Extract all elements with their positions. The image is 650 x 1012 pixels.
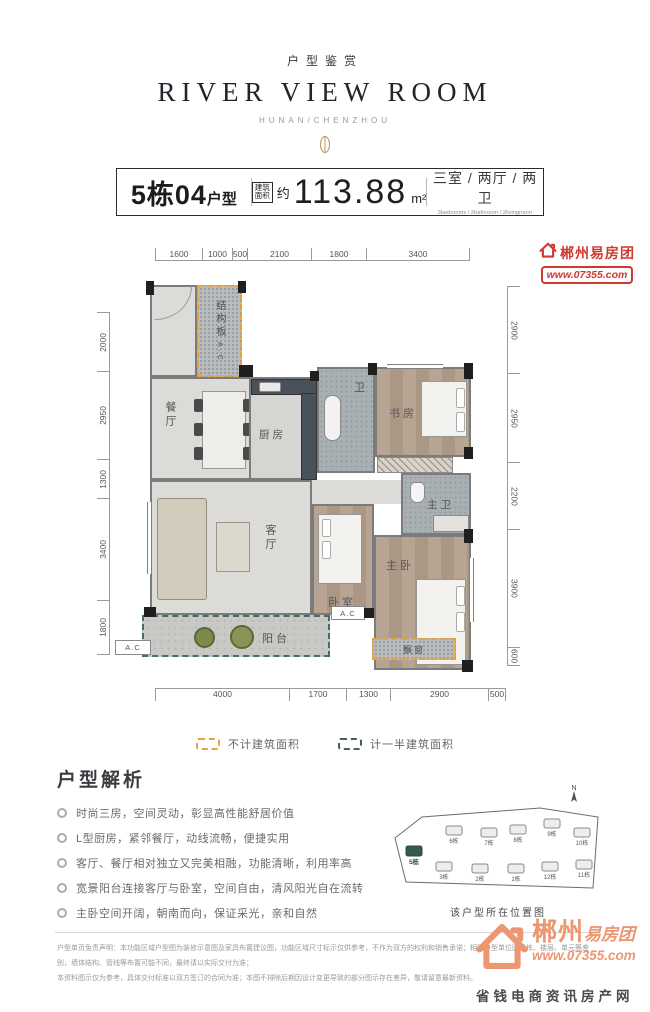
legend-swatch-teal	[338, 738, 362, 750]
svg-text:1栋: 1栋	[511, 875, 520, 883]
legend-label: 计一半建筑面积	[370, 736, 454, 752]
area-unit: m²	[411, 191, 426, 212]
kitchen-counter-side	[301, 393, 317, 480]
legend-item-half: 计一半建筑面积	[338, 736, 454, 752]
wall-pier	[144, 607, 156, 617]
site-map-canvas: 5栋 6栋 7栋 8栋 9栋 10栋 3栋 2栋 1栋 12栋 11栋	[392, 800, 604, 896]
area-value: 113.88	[294, 173, 407, 212]
svg-text:10栋: 10栋	[576, 839, 589, 847]
dimension-line-bottom: 4000 1700 1300 2900 500	[155, 688, 506, 701]
legend-label: 不计建筑面积	[228, 736, 300, 752]
master-bath-label: 主卫	[427, 497, 454, 512]
leaf-ornament-icon	[0, 135, 650, 159]
balcony-label: 阳台	[262, 630, 290, 646]
site-map-caption: 该户型所在位置图	[392, 904, 604, 919]
dimension-line-top: 1600 1000 500 2100 1800 3400	[155, 248, 470, 261]
wall-pier	[464, 363, 473, 379]
built-area: 建筑 面积 约 113.88 m²	[252, 173, 427, 212]
building: 6栋	[446, 826, 462, 845]
toilet	[410, 482, 425, 503]
kitchen-sink	[259, 382, 281, 392]
compass-icon: N	[566, 782, 582, 809]
bedroom-bed	[318, 514, 362, 584]
area-tag-line2: 面积	[255, 191, 270, 200]
page-title: RIVER VIEW ROOM	[0, 77, 650, 108]
bathtub	[324, 395, 341, 441]
room-count: 三室 / 两厅 / 两卫 3bedrooms / 2bathroom / 2li…	[427, 168, 543, 216]
plant-icon	[230, 625, 254, 649]
room-count-en: 3bedrooms / 2bathroom / 2livingroom	[430, 210, 540, 216]
wall-pier	[238, 281, 246, 293]
legend-swatch-orange	[196, 738, 220, 750]
living-label: 客厅	[262, 524, 278, 552]
living-window	[147, 502, 152, 574]
header: 户型鉴赏 RIVER VIEW ROOM HUNAN/CHENZHOU	[0, 52, 650, 159]
unit-number: 5栋04	[131, 180, 207, 210]
svg-text:2栋: 2栋	[475, 875, 484, 883]
ac-unit-mid: A.C	[331, 606, 365, 620]
logo-brand: 易房团	[584, 925, 635, 944]
room-master-bath: 主卫	[401, 473, 471, 535]
bullet-ring-icon	[57, 883, 67, 893]
logo-url: www.07355.com	[532, 949, 636, 963]
room-bath: 卫	[317, 367, 375, 473]
wardrobe	[377, 457, 453, 473]
study-window	[387, 364, 443, 369]
building: 10栋	[574, 828, 590, 847]
wall-pier	[239, 365, 253, 377]
room-kitchen: 厨房	[249, 377, 317, 480]
svg-text:8栋: 8栋	[513, 836, 522, 844]
site-location-map: N 5栋 6栋 7栋 8栋 9栋 10栋 3栋 2栋 1栋 12栋 11栋 该户…	[392, 800, 604, 919]
building: 12栋	[542, 862, 558, 881]
room-count-cn: 三室 / 两厅 / 两卫	[427, 168, 543, 208]
building: 8栋	[510, 825, 526, 844]
area-approx: 约	[277, 183, 290, 202]
room-balcony: 阳台	[142, 615, 330, 657]
wall-pier	[364, 608, 374, 618]
building: 9栋	[544, 819, 560, 838]
building: 3栋	[436, 862, 452, 881]
floor-plan: 1600 1000 500 2100 1800 3400 4000 1700 1…	[55, 240, 595, 708]
ac-unit-left: A.C	[115, 640, 151, 655]
dining-table	[202, 391, 246, 469]
wall-pier	[464, 529, 473, 543]
svg-text:12栋: 12栋	[544, 873, 557, 881]
unit-name: 5栋04户型	[117, 173, 251, 212]
unit-suffix: 户型	[207, 191, 237, 208]
wall-pier	[368, 363, 377, 375]
sofa	[157, 498, 207, 600]
building: 2栋	[472, 864, 488, 883]
structure-ac-label: A.C	[216, 342, 223, 363]
analysis-title: 户型解析	[57, 765, 145, 792]
building: 11栋	[576, 860, 592, 879]
svg-text:6栋: 6栋	[449, 837, 458, 845]
building: 1栋	[508, 864, 524, 883]
structure-board-label: 结构板	[212, 300, 227, 339]
bullet-ring-icon	[57, 808, 67, 818]
room-bedroom: 卧室	[312, 504, 374, 615]
unit-spec-box: 5栋04户型 建筑 面积 约 113.88 m² 三室 / 两厅 / 两卫 3b…	[116, 168, 544, 216]
svg-text:N: N	[571, 785, 576, 792]
area-tag: 建筑 面积	[252, 182, 273, 203]
room-dining: 餐厅	[150, 377, 251, 480]
bath-label: 卫	[354, 379, 365, 395]
room-structure-board: 结构板 A.C	[197, 285, 242, 377]
bullet-ring-icon	[57, 833, 67, 843]
chair	[194, 423, 203, 436]
house-icon	[476, 920, 528, 977]
coffee-table	[216, 522, 250, 572]
legend-item-excluded: 不计建筑面积	[196, 736, 300, 752]
kitchen-label: 厨房	[259, 427, 286, 442]
bay-window: 飘窗	[372, 638, 456, 660]
chair	[194, 447, 203, 460]
wall-pier	[462, 660, 473, 672]
svg-text:11栋: 11栋	[578, 871, 590, 879]
master-bedroom-label: 主卧	[386, 557, 414, 573]
dimension-line-left: 2000 2950 1300 3400 1800	[97, 312, 110, 655]
room-living: 客厅	[150, 480, 312, 615]
flyer-page: 户型鉴赏 RIVER VIEW ROOM HUNAN/CHENZHOU 5栋04…	[0, 0, 650, 1012]
bay-window-label: 飘窗	[403, 643, 425, 656]
wall-pier	[310, 371, 319, 381]
study-label: 书房	[389, 405, 417, 421]
study-bed	[421, 381, 467, 437]
logo-city: 郴州	[532, 918, 584, 946]
chair	[194, 399, 203, 412]
dimension-line-right: 2900 2950 2200 3900 600	[507, 286, 520, 666]
room-study: 书房	[375, 367, 471, 457]
dining-label: 餐厅	[162, 401, 178, 429]
svg-text:5栋: 5栋	[409, 857, 420, 866]
bullet-ring-icon	[57, 858, 67, 868]
logo-tagline: 省钱电商资讯房产网	[476, 985, 650, 1005]
header-location: HUNAN/CHENZHOU	[0, 116, 650, 125]
svg-text:7栋: 7栋	[484, 839, 493, 847]
master-window	[469, 558, 474, 622]
building: 7栋	[481, 828, 497, 847]
building-5: 5栋	[406, 846, 422, 866]
bullet-ring-icon	[57, 908, 67, 918]
svg-text:9栋: 9栋	[547, 830, 556, 838]
footer-logo: 郴州易房团 www.07355.com 省钱电商资讯房产网	[476, 920, 650, 1005]
wall-pier	[464, 447, 473, 459]
wall-pier	[146, 281, 154, 295]
header-kicker: 户型鉴赏	[0, 52, 650, 69]
svg-text:3栋: 3栋	[439, 873, 448, 881]
plant-icon	[194, 627, 215, 648]
legend: 不计建筑面积 计一半建筑面积	[0, 736, 650, 752]
